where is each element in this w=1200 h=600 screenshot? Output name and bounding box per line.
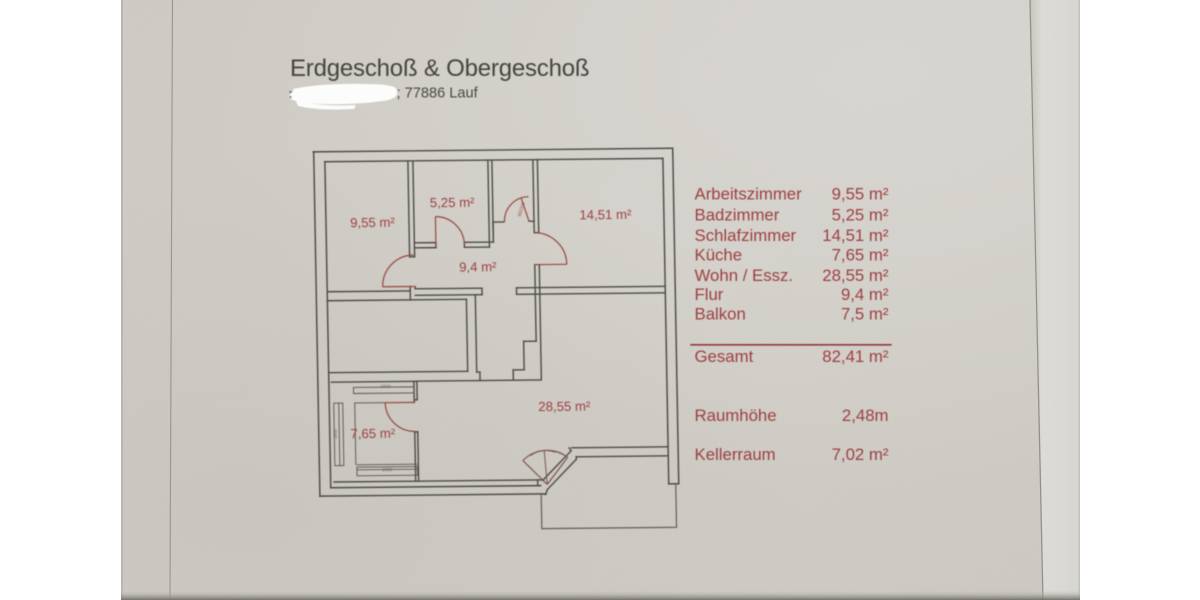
svg-text:Arbeitszimmer: Arbeitszimmer (695, 184, 803, 203)
svg-text:7,65 m²: 7,65 m² (350, 426, 396, 441)
svg-text:1800: 1800 (380, 384, 391, 389)
svg-text:; 77886 Lauf: ; 77886 Lauf (397, 86, 479, 102)
svg-text:14,51 m²: 14,51 m² (579, 207, 632, 223)
svg-text:2,48m: 2,48m (842, 406, 889, 425)
svg-text:9,4 m²: 9,4 m² (459, 259, 497, 274)
svg-text:14,51 m²: 14,51 m² (822, 226, 889, 245)
svg-text:Raumhöhe: Raumhöhe (695, 406, 777, 425)
svg-text:Wohn / Essz.: Wohn / Essz. (695, 266, 794, 285)
svg-text:Erdgeschoß & Obergeschoß: Erdgeschoß & Obergeschoß (290, 55, 589, 82)
svg-text:28,55 m²: 28,55 m² (822, 266, 889, 285)
svg-text:9,4 m²: 9,4 m² (841, 285, 889, 304)
svg-text:82,41 m²: 82,41 m² (822, 347, 889, 366)
svg-text:5,25 m²: 5,25 m² (430, 195, 476, 210)
svg-text:5,25 m²: 5,25 m² (832, 206, 889, 225)
svg-text:Schlafzimmer: Schlafzimmer (695, 226, 797, 245)
svg-text:7,02 m²: 7,02 m² (832, 445, 889, 464)
svg-text:9,55 m²: 9,55 m² (832, 184, 889, 203)
svg-text:Badzimmer: Badzimmer (695, 206, 780, 225)
svg-text:Flur: Flur (695, 285, 724, 304)
svg-text:7,65 m²: 7,65 m² (832, 246, 889, 265)
svg-text:Balkon: Balkon (695, 305, 746, 324)
svg-text:7,5 m²: 7,5 m² (841, 305, 889, 324)
svg-text:Kellerraum: Kellerraum (695, 445, 776, 464)
svg-text:1800: 1800 (382, 467, 393, 472)
svg-text:1800: 1800 (333, 429, 338, 440)
svg-text:9,55 m²: 9,55 m² (350, 215, 396, 230)
svg-text:Gesamt: Gesamt (695, 347, 754, 366)
svg-text:28,55 m²: 28,55 m² (538, 399, 591, 415)
svg-text:Küche: Küche (695, 246, 743, 265)
